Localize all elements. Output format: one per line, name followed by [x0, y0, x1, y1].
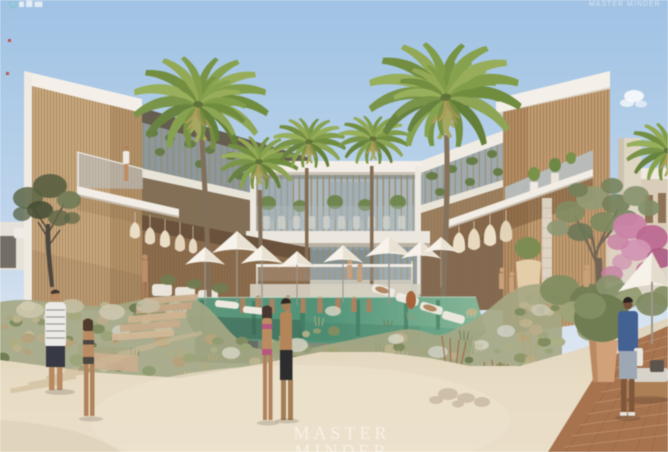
svg-text:MASTER: MASTER [293, 423, 390, 443]
svg-text:MINDER: MINDER [295, 441, 390, 452]
